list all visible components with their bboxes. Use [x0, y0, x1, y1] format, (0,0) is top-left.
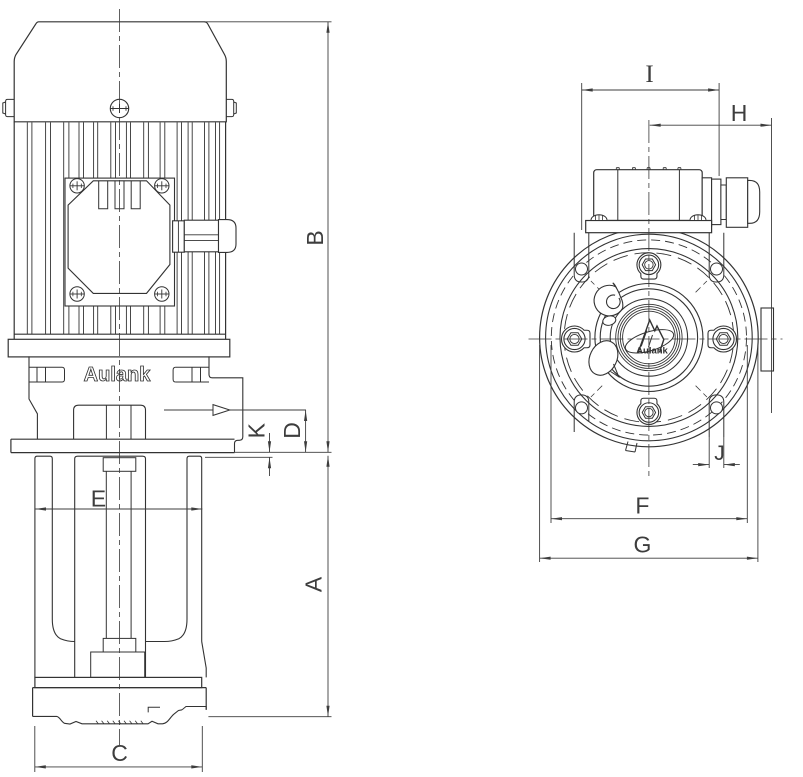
svg-text:I: I: [645, 61, 653, 88]
svg-text:E: E: [91, 486, 106, 512]
svg-text:B: B: [302, 230, 328, 245]
svg-text:H: H: [731, 100, 748, 126]
svg-text:A: A: [300, 576, 326, 592]
svg-text:J: J: [714, 442, 725, 465]
svg-text:F: F: [635, 493, 649, 519]
svg-text:D: D: [279, 422, 305, 439]
svg-text:G: G: [633, 532, 651, 558]
svg-text:Aulank: Aulank: [84, 364, 152, 386]
svg-text:Aulank: Aulank: [636, 346, 668, 357]
svg-text:K: K: [243, 422, 269, 438]
